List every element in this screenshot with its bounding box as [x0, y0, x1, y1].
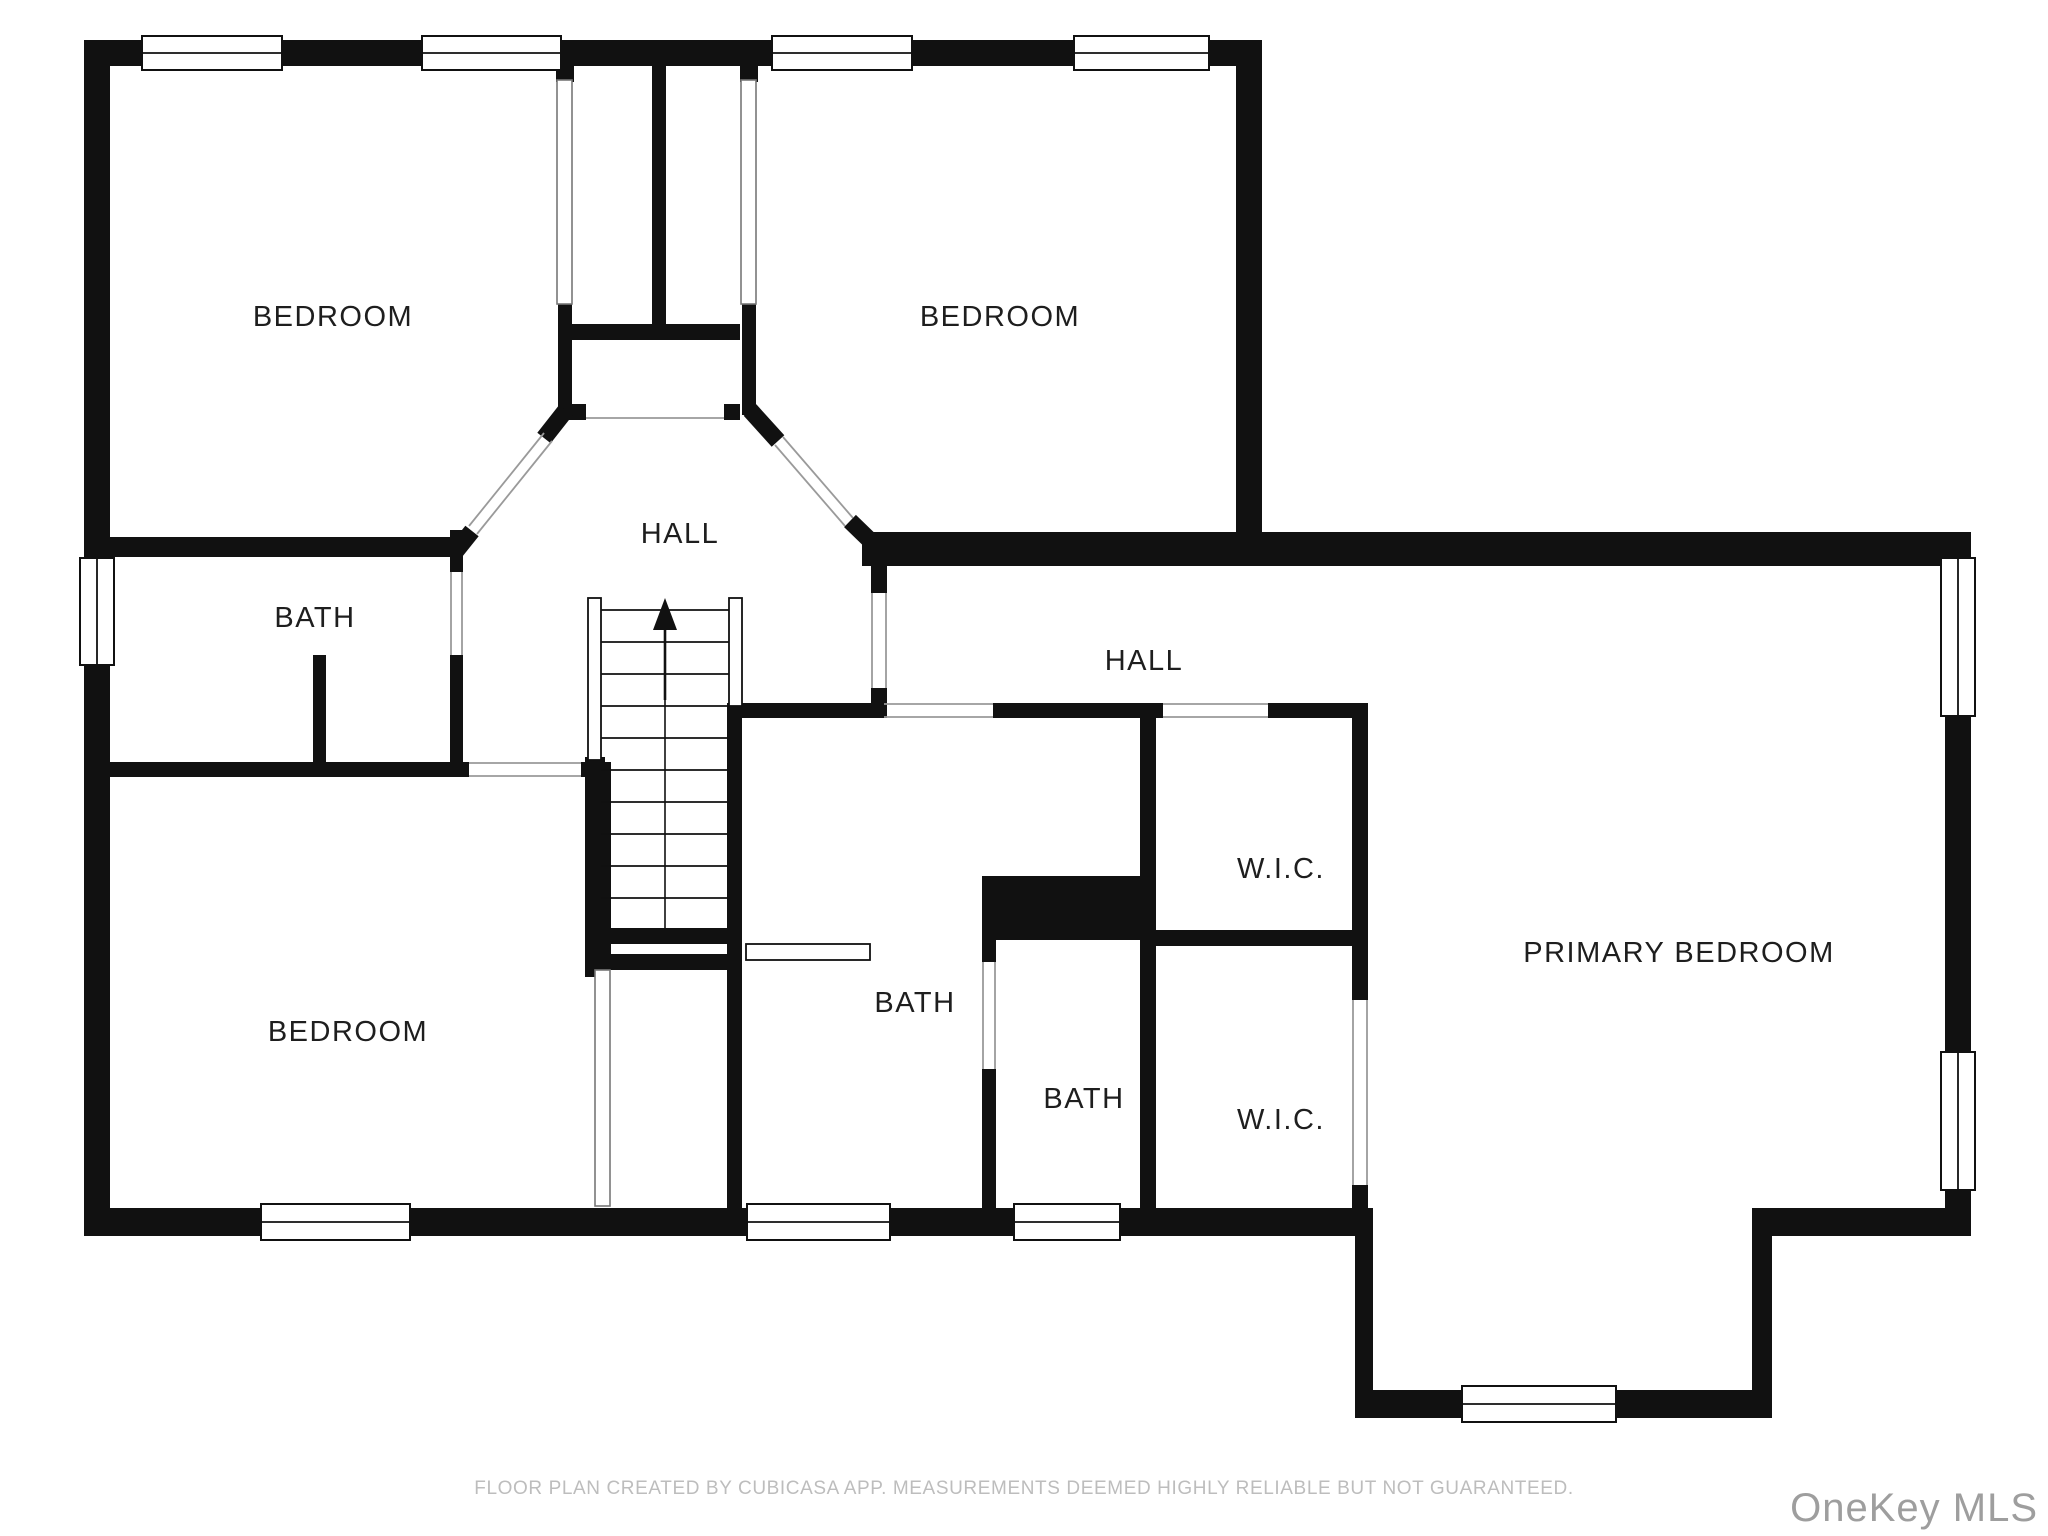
- room-label-primary-bedroom: PRIMARY BEDROOM: [1523, 937, 1834, 969]
- closet-door-bedroom2: [741, 80, 756, 304]
- wall-bath-small-left-lower: [982, 1069, 996, 1208]
- room-label-hall-center: HALL: [641, 518, 720, 550]
- window: [80, 558, 114, 665]
- room-label-wic-bottom: W.I.C.: [1237, 1104, 1325, 1136]
- wall-diagonal-left-upper: [544, 410, 566, 438]
- wall-bedroom3-top-left: [110, 762, 469, 777]
- door-opening-bedroom1: [469, 433, 544, 526]
- wall-diagonal-right-lower: [850, 521, 882, 552]
- room-label-bedroom-top-left: BEDROOM: [253, 301, 413, 333]
- floor-plan: BEDROOM BEDROOM HALL BATH HALL W.I.C. BA…: [0, 0, 2048, 1536]
- room-label-wic-top: W.I.C.: [1237, 853, 1325, 885]
- wall-bottom-right-section: [1752, 1208, 1971, 1236]
- window: [747, 1204, 890, 1240]
- wall-stair-right: [727, 703, 742, 1208]
- stair-rail-left: [588, 598, 601, 760]
- wall-alcove-right: [742, 302, 756, 415]
- wall-alcove-stub: [724, 404, 740, 420]
- footer-disclaimer: FLOOR PLAN CREATED BY CUBICASA APP. MEAS…: [0, 1478, 2048, 1500]
- wall-hall-right-upper: [871, 548, 887, 593]
- up-arrow-head: [653, 598, 677, 630]
- door-opening-bedroom1: [477, 441, 552, 534]
- wall-alcove-stub: [572, 404, 586, 420]
- wall-bedroom2-right: [1236, 40, 1262, 566]
- up-arrow-icon: [653, 598, 677, 700]
- wall-bath-wic-divider: [1140, 703, 1156, 1208]
- wall-bath-left-right-lower: [450, 655, 463, 777]
- wall-right-section-top: [862, 532, 1971, 566]
- room-label-bath-small: BATH: [1043, 1083, 1124, 1115]
- stair-rail-right: [729, 598, 742, 706]
- wall-diagonal-right-upper: [750, 410, 778, 441]
- closet-door-bedroom1: [557, 80, 572, 304]
- wall-bedroom1-bottom: [110, 537, 460, 557]
- wall-bedroom3-closet-top: [596, 954, 742, 970]
- wall-closet-bottom: [572, 324, 740, 340]
- wall-bath-left-right-upper: [450, 530, 463, 572]
- wall-bay-left: [1355, 1208, 1373, 1418]
- window: [422, 36, 561, 70]
- window: [1941, 1052, 1975, 1190]
- window: [772, 36, 912, 70]
- wall-plumbing-block: [982, 876, 1150, 940]
- wall-closet-center: [652, 66, 666, 340]
- room-label-bath-center: BATH: [874, 987, 955, 1019]
- room-label-bath-left: BATH: [274, 602, 355, 634]
- room-label-bedroom-top-right: BEDROOM: [920, 301, 1080, 333]
- wall-stair-bottom: [585, 928, 742, 944]
- counter-shelf: [746, 944, 870, 960]
- wall-alcove-left: [558, 302, 572, 420]
- closet-door-bedroom3: [595, 970, 610, 1206]
- window: [142, 36, 282, 70]
- watermark: OneKey MLS: [1790, 1486, 2038, 1531]
- room-label-bedroom-bottom-left: BEDROOM: [268, 1016, 428, 1048]
- wall-wic-divider: [1156, 930, 1352, 946]
- window: [1074, 36, 1209, 70]
- wall-bath-small-left-upper: [982, 940, 996, 962]
- door-opening-bedroom2: [775, 445, 845, 526]
- room-label-hall-right: HALL: [1105, 645, 1184, 677]
- wall-bath-left-stub: [313, 655, 326, 777]
- room-labels: BEDROOM BEDROOM HALL BATH HALL W.I.C. BA…: [253, 301, 1835, 1136]
- window: [261, 1204, 410, 1240]
- windows: [80, 36, 1975, 1422]
- window: [1941, 558, 1975, 716]
- wall-hall-bottom-b: [993, 703, 1163, 718]
- wall-bay-right: [1752, 1208, 1772, 1418]
- wall-primary-left-upper: [1352, 703, 1368, 1000]
- wall-primary-left-lower: [1352, 1185, 1368, 1208]
- window: [1462, 1386, 1616, 1422]
- door-opening-bedroom2: [783, 437, 853, 518]
- wall-hall-bottom-a: [742, 703, 884, 718]
- window: [1014, 1204, 1120, 1240]
- wall-hall-right-lower: [871, 688, 887, 718]
